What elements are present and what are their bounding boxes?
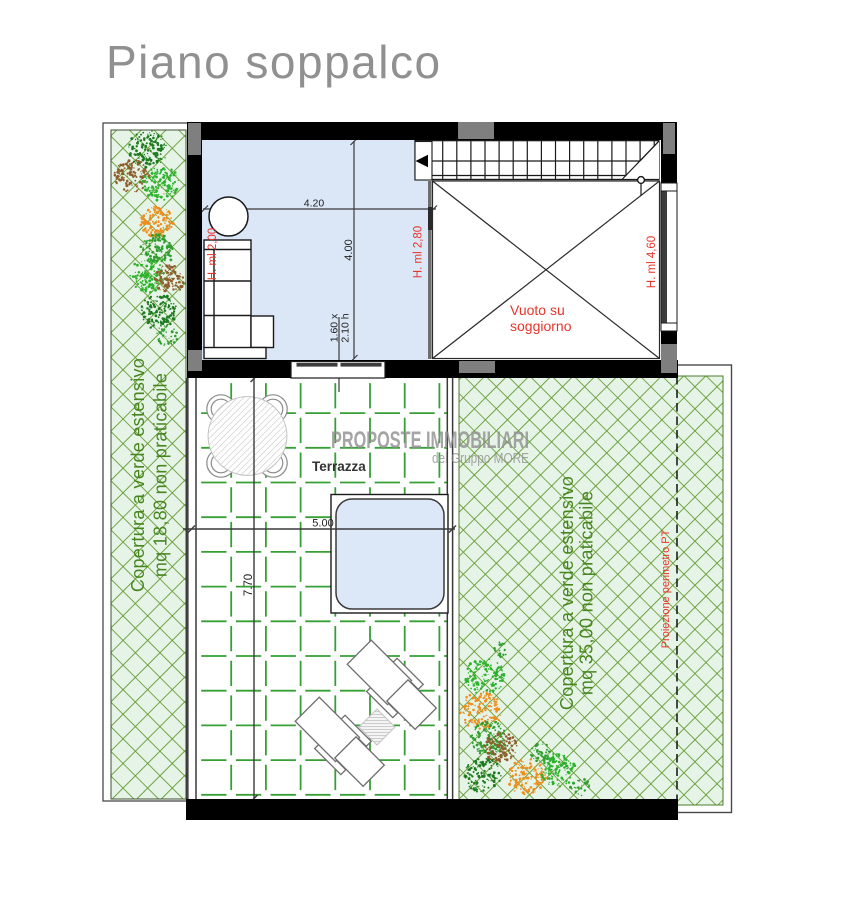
svg-text:Vuoto su: Vuoto su [510, 302, 565, 318]
svg-text:7.70: 7.70 [243, 574, 255, 596]
svg-text:Copertura a verde estensivo: Copertura a verde estensivo [557, 476, 577, 710]
svg-text:H. ml 2,00: H. ml 2,00 [207, 228, 219, 280]
svg-text:4.20: 4.20 [304, 198, 325, 210]
svg-text:4.00: 4.00 [343, 239, 355, 260]
svg-text:Terrazza: Terrazza [312, 459, 366, 474]
svg-text:soggiorno: soggiorno [510, 318, 572, 334]
svg-text:H. ml 4,60: H. ml 4,60 [646, 236, 658, 288]
svg-text:5.00: 5.00 [312, 518, 333, 530]
svg-text:2.10 h: 2.10 h [340, 313, 352, 342]
svg-text:Piano soppalco: Piano soppalco [106, 36, 442, 88]
svg-text:mq 18,80 non praticabile: mq 18,80 non praticabile [151, 373, 171, 577]
svg-text:Copertura a verde estensivo: Copertura a verde estensivo [128, 358, 148, 592]
svg-text:H. ml 2,80: H. ml 2,80 [413, 226, 425, 278]
svg-text:del Gruppo MORE: del Gruppo MORE [432, 450, 529, 467]
svg-text:mq 35,00 non praticabile: mq 35,00 non praticabile [577, 491, 597, 695]
svg-text:Proiezione perimetro PT: Proiezione perimetro PT [660, 529, 672, 648]
